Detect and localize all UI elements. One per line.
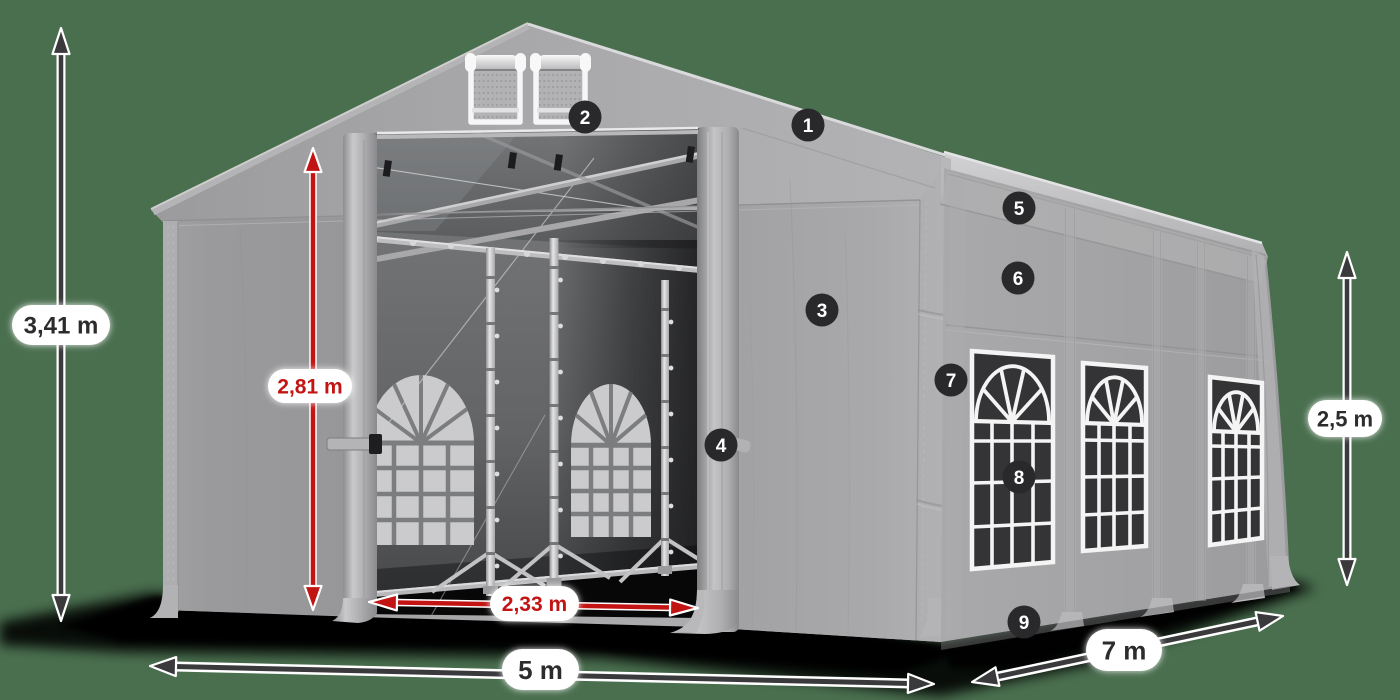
svg-text:4: 4: [716, 436, 727, 457]
svg-text:2,81 m: 2,81 m: [277, 376, 342, 399]
svg-text:3: 3: [817, 301, 828, 322]
svg-text:7 m: 7 m: [1102, 635, 1147, 665]
svg-text:8: 8: [1014, 468, 1025, 489]
svg-text:2,33 m: 2,33 m: [502, 593, 567, 616]
svg-text:3,41 m: 3,41 m: [24, 313, 99, 340]
svg-text:1: 1: [803, 116, 814, 137]
svg-text:2: 2: [580, 108, 591, 129]
svg-text:5: 5: [1014, 199, 1025, 220]
svg-text:2,5 m: 2,5 m: [1317, 406, 1373, 431]
svg-text:7: 7: [946, 371, 957, 392]
svg-text:9: 9: [1019, 613, 1030, 634]
svg-text:6: 6: [1013, 269, 1024, 290]
svg-text:5 m: 5 m: [518, 655, 563, 685]
